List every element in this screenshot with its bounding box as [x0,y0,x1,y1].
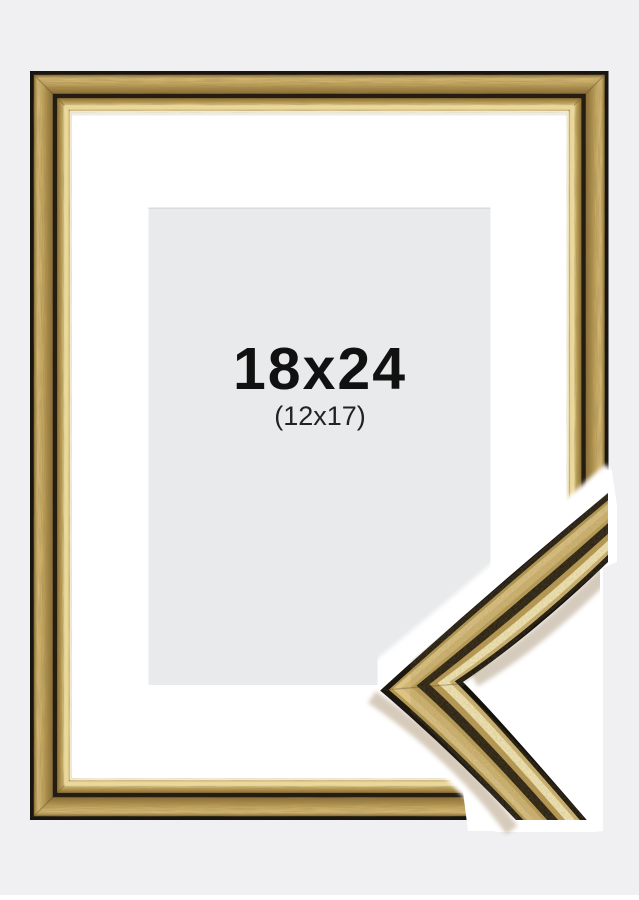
svg-text:18x24: 18x24 [233,336,407,402]
svg-text:(12x17): (12x17) [274,401,366,431]
